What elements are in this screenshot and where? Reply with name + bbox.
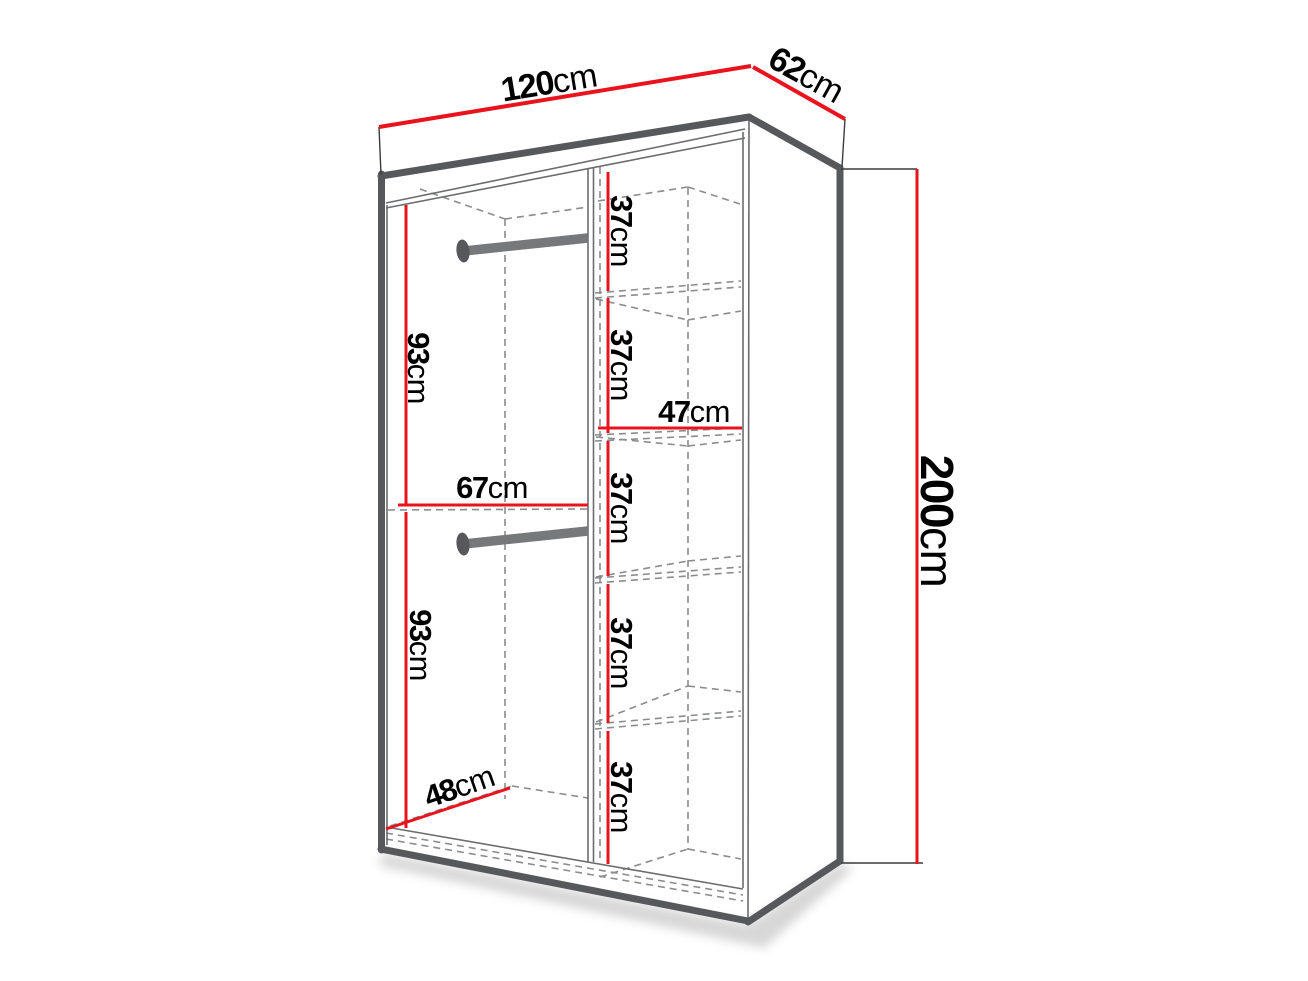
- hanging-rod-top: [455, 238, 588, 263]
- dim-unit: cm: [605, 361, 640, 401]
- dim-value: 93: [402, 332, 437, 365]
- dim-label-shelf-height-1: 37cm: [605, 195, 640, 267]
- extension-line: [379, 127, 381, 175]
- dim-label-shelf-height-5: 37cm: [605, 761, 640, 833]
- dim-label-hanging-bottom: 93cm: [404, 609, 439, 681]
- centre-partition: [588, 168, 594, 862]
- dim-unit: cm: [488, 470, 528, 505]
- dim-unit: cm: [690, 394, 730, 429]
- dim-label-shelf-width: 47cm: [658, 394, 730, 429]
- dim-value: 67: [456, 470, 488, 505]
- dim-unit: cm: [605, 793, 640, 833]
- hanging-rod-bottom: [455, 531, 588, 556]
- dim-value: 93: [404, 609, 439, 642]
- dim-value: 47: [658, 394, 690, 429]
- dim-value: 200: [911, 455, 963, 527]
- extension-line: [842, 119, 845, 167]
- dim-label-shelf-height-4: 37cm: [605, 617, 640, 689]
- dim-label-hanging-top: 93cm: [402, 332, 437, 404]
- dim-unit: cm: [402, 364, 437, 404]
- dim-value: 37: [605, 195, 640, 227]
- dim-unit: cm: [605, 504, 640, 544]
- dim-label-height: 200cm: [911, 455, 963, 588]
- dim-label-depth: 62cm: [762, 39, 850, 111]
- dim-label-shelf-height-2: 37cm: [605, 329, 640, 401]
- dim-unit: cm: [404, 641, 439, 681]
- dim-unit: cm: [605, 227, 640, 267]
- wardrobe-dimension-diagram: 120cm 62cm 200cm 93cm 93cm 67cm 48cm 47c…: [0, 0, 1308, 981]
- dim-label-section-width: 67cm: [456, 470, 528, 505]
- dim-unit: cm: [911, 527, 963, 587]
- diagram-canvas: 120cm 62cm 200cm 93cm 93cm 67cm 48cm 47c…: [0, 0, 1308, 981]
- dim-label-width: 120cm: [498, 56, 599, 109]
- dim-value: 37: [605, 329, 640, 361]
- dim-label-shelf-height-3: 37cm: [605, 472, 640, 544]
- dim-value: 37: [605, 761, 640, 793]
- dim-value: 120: [498, 64, 556, 110]
- dim-unit: cm: [550, 56, 600, 101]
- dim-value: 37: [605, 617, 640, 649]
- dim-unit: cm: [605, 649, 640, 689]
- dim-value: 37: [605, 472, 640, 504]
